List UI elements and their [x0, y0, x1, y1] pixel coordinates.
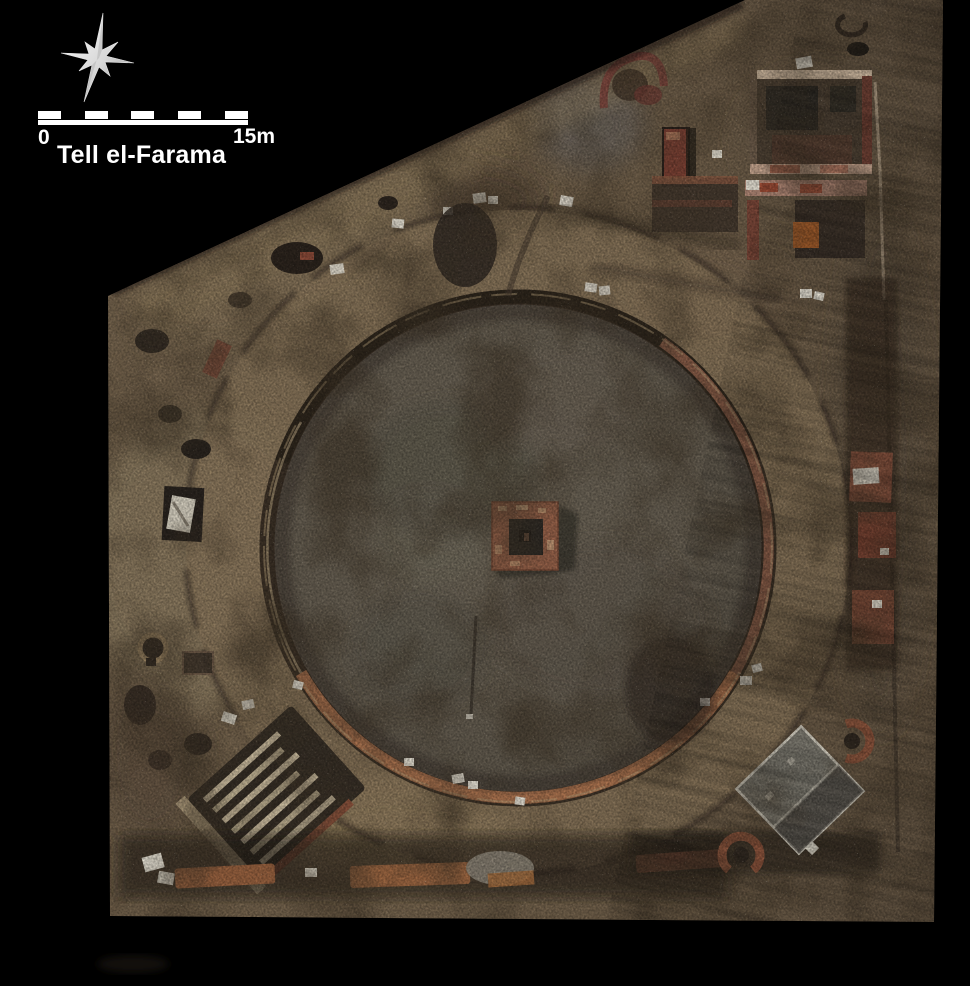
scale-bar [38, 111, 248, 125]
scan-artifact-smudge [97, 955, 169, 973]
scale-end-label: 15m [233, 126, 275, 147]
scale-start-label: 0 [38, 127, 50, 148]
scale-bar-segment [178, 111, 201, 119]
scale-bar-segment [38, 111, 61, 119]
map-legend: 0 15m Tell el-Farama [0, 0, 300, 180]
scale-bar-segment [85, 111, 108, 119]
site-name-label: Tell el-Farama [57, 142, 226, 170]
north-arrow-icon [55, 12, 143, 107]
figure-canvas: 0 15m Tell el-Farama [0, 0, 970, 986]
scale-bar-segment [131, 111, 154, 119]
scale-bar-baseline [38, 120, 248, 125]
scale-bar-segment [225, 111, 248, 119]
